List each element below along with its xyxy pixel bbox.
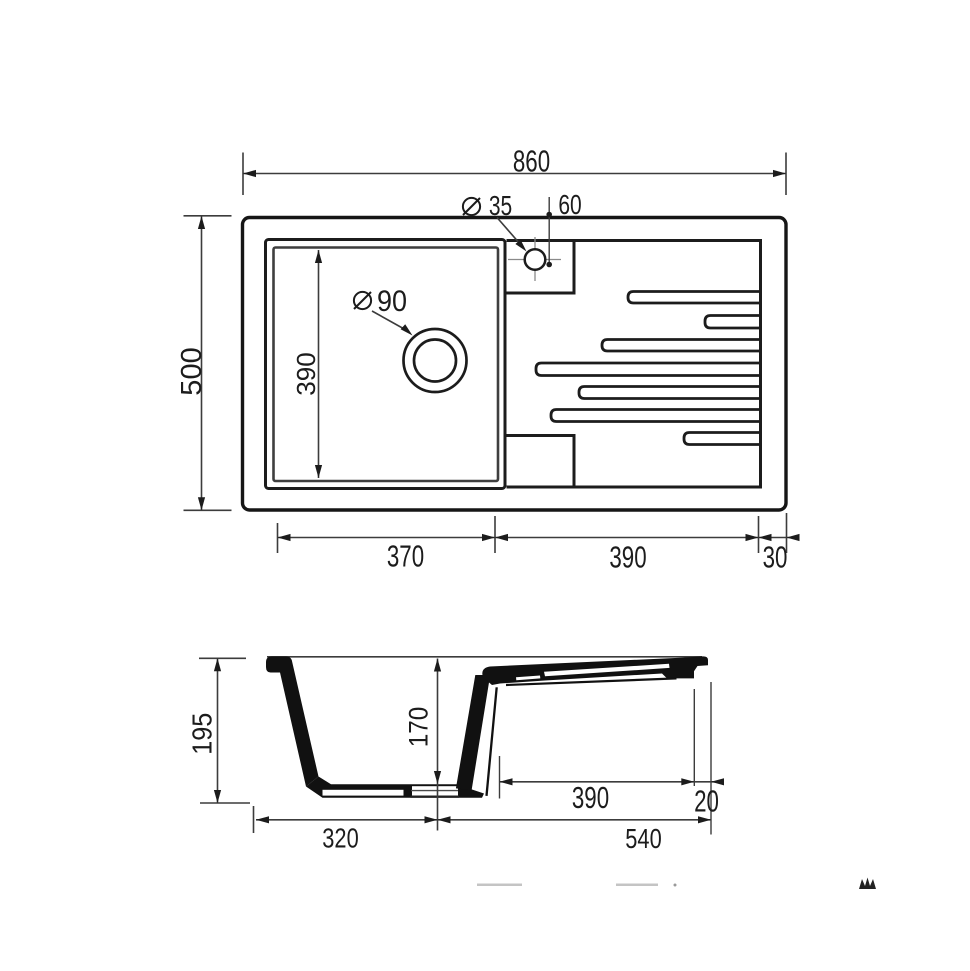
svg-text:540: 540 — [625, 823, 661, 854]
svg-text:20: 20 — [694, 784, 719, 818]
svg-text:30: 30 — [763, 540, 788, 574]
svg-text:195: 195 — [186, 713, 218, 755]
svg-text:90: 90 — [377, 285, 407, 319]
svg-text:390: 390 — [572, 780, 609, 814]
svg-text:500: 500 — [176, 347, 208, 395]
svg-text:60: 60 — [558, 190, 581, 221]
svg-text:170: 170 — [404, 707, 433, 748]
svg-text:320: 320 — [322, 823, 358, 854]
svg-text:370: 370 — [387, 539, 424, 573]
svg-text:860: 860 — [513, 144, 550, 178]
svg-text:390: 390 — [291, 352, 321, 395]
svg-text:35: 35 — [489, 191, 512, 222]
svg-text:390: 390 — [609, 540, 646, 574]
